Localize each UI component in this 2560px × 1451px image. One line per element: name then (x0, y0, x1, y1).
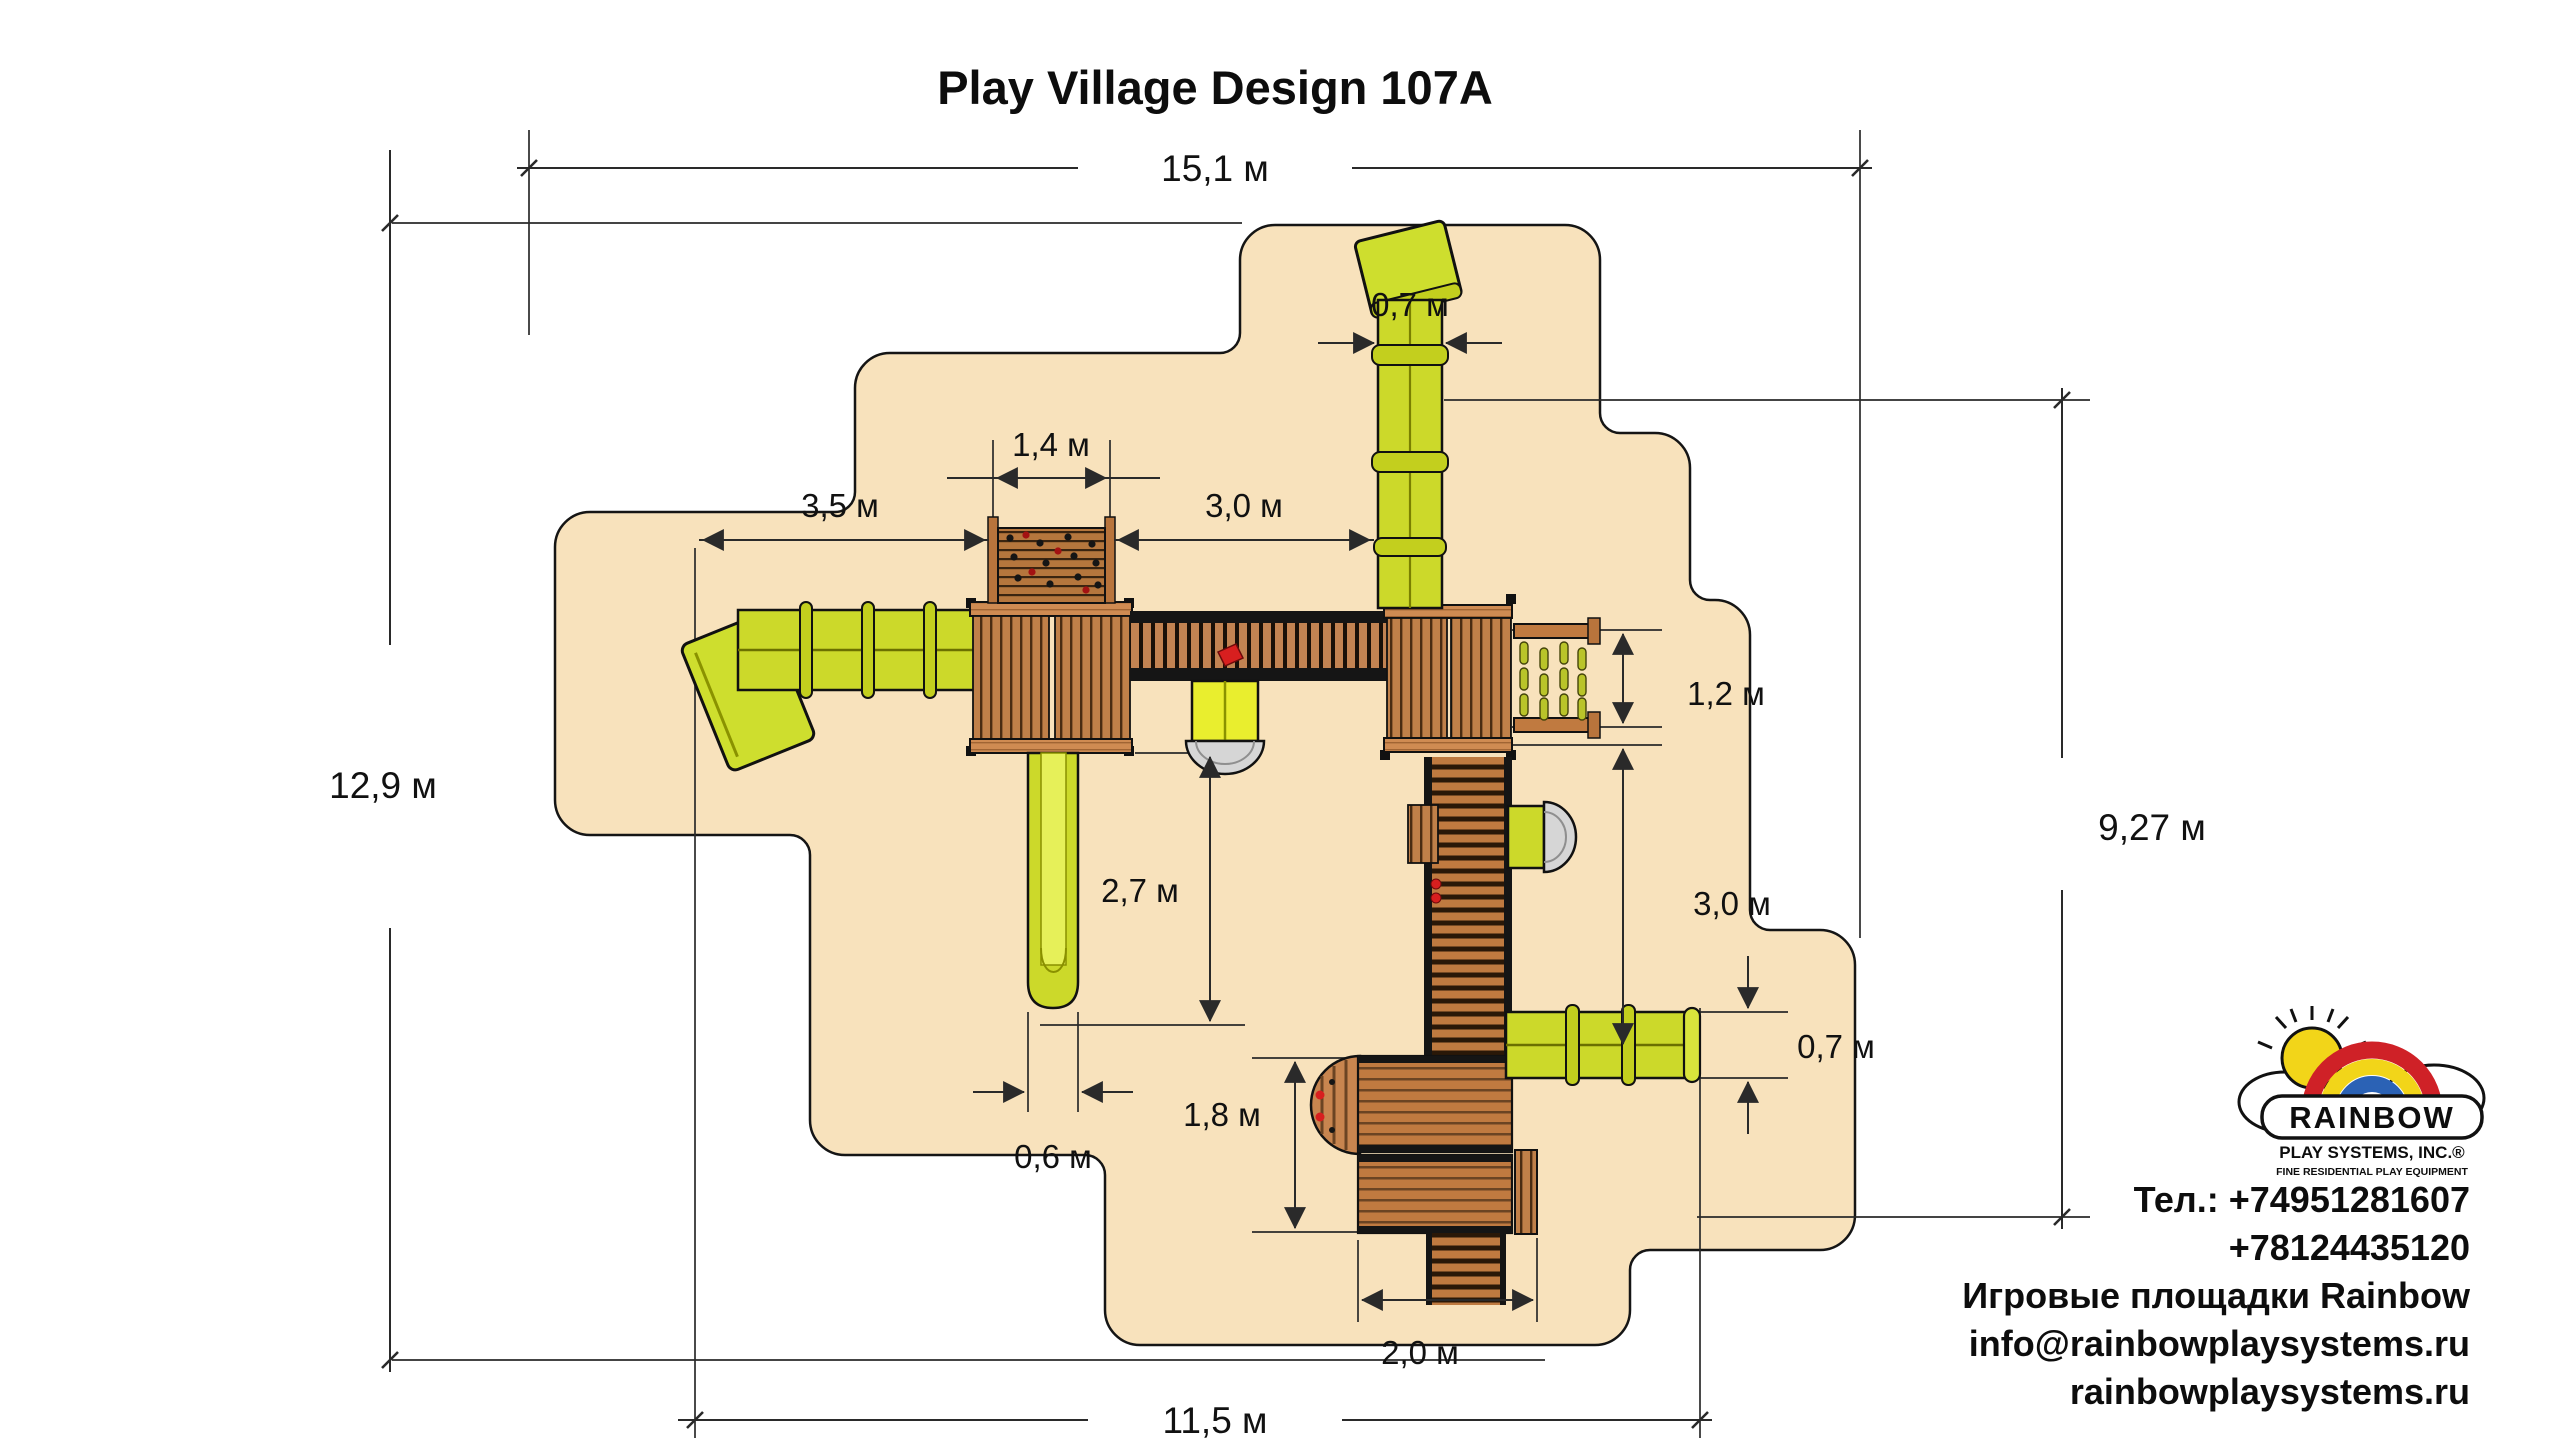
dim-label-slide-width: 0,6 м (1014, 1138, 1092, 1175)
lower-stairs (1432, 1233, 1500, 1305)
dim-label-lower-tower-depth: 1,8 м (1183, 1096, 1261, 1133)
contact-email: info@rainbowplaysystems.ru (1969, 1323, 2470, 1364)
dim-label-right-clearance: 3,0 м (1693, 885, 1771, 922)
bridge (1130, 611, 1388, 681)
dim-overall-width: 15,1 м (517, 148, 1872, 189)
dim-label-bottom-tube-width: 0,7 м (1797, 1028, 1875, 1065)
dim-label-top-tube-width: 0,7 м (1371, 286, 1449, 323)
page-title: Play Village Design 107A (937, 61, 1493, 114)
lower-side-wall (1515, 1150, 1537, 1234)
climbing-wall (988, 517, 1115, 603)
plan-sheet: 15,1 м 12,9 м 11,5 м 9,27 м 0,7 м 1,4 м … (0, 0, 2560, 1451)
dim-label-lower-tower-width: 2,0 м (1381, 1334, 1459, 1371)
dim-structure-depth: 9,27 м (2054, 388, 2206, 1229)
side-tube-dome (1508, 802, 1576, 872)
logo-tagline-text: FINE RESIDENTIAL PLAY EQUIPMENT (2276, 1166, 2468, 1178)
straight-slide (1028, 753, 1078, 1008)
dim-overall-depth: 12,9 м (329, 150, 437, 1372)
dim-label-left-clearance: 3,5 м (801, 487, 879, 524)
dim-label-overall-depth: 12,9 м (329, 765, 437, 806)
dim-label-monkey-bars-width: 1,2 м (1687, 675, 1765, 712)
climbing-wall-post-left (988, 517, 998, 603)
climbing-wall-post-right (1105, 517, 1115, 603)
contact-phone-2: +78124435120 (2229, 1227, 2470, 1268)
site-plan-drawing: 15,1 м 12,9 м 11,5 м 9,27 м 0,7 м 1,4 м … (0, 0, 2560, 1451)
contact-phone-1: Тел.: +74951281607 (2134, 1179, 2470, 1220)
logo-subtitle-text: PLAY SYSTEMS, INC.® (2279, 1143, 2465, 1162)
contact-website: rainbowplaysystems.ru (2070, 1371, 2470, 1412)
tube-slide-bottom (1506, 1005, 1700, 1085)
dim-label-overall-width: 15,1 м (1161, 148, 1269, 189)
dim-structure-width: 11,5 м (678, 1400, 1712, 1441)
logo-brand-text: RAINBOW (2289, 1100, 2455, 1135)
hold-red (1431, 879, 1441, 889)
dim-label-structure-depth: 9,27 м (2098, 807, 2206, 848)
dim-label-climb-wall-width: 1,4 м (1012, 426, 1090, 463)
contact-info: Тел.: +74951281607 +78124435120 Игровые … (1962, 1179, 2471, 1412)
play-area-outline (555, 225, 1855, 1345)
hold-red (1431, 893, 1441, 903)
side-panel (1408, 805, 1438, 863)
periscope-dome (1186, 681, 1264, 774)
dim-label-slide-clearance: 2,7 м (1101, 872, 1179, 909)
dim-label-structure-width: 11,5 м (1163, 1400, 1268, 1441)
rainbow-logo: RAINBOW PLAY SYSTEMS, INC.® FINE RESIDEN… (2239, 1006, 2484, 1178)
dim-label-top-clearance: 3,0 м (1205, 487, 1283, 524)
contact-company: Игровые площадки Rainbow (1962, 1275, 2471, 1316)
